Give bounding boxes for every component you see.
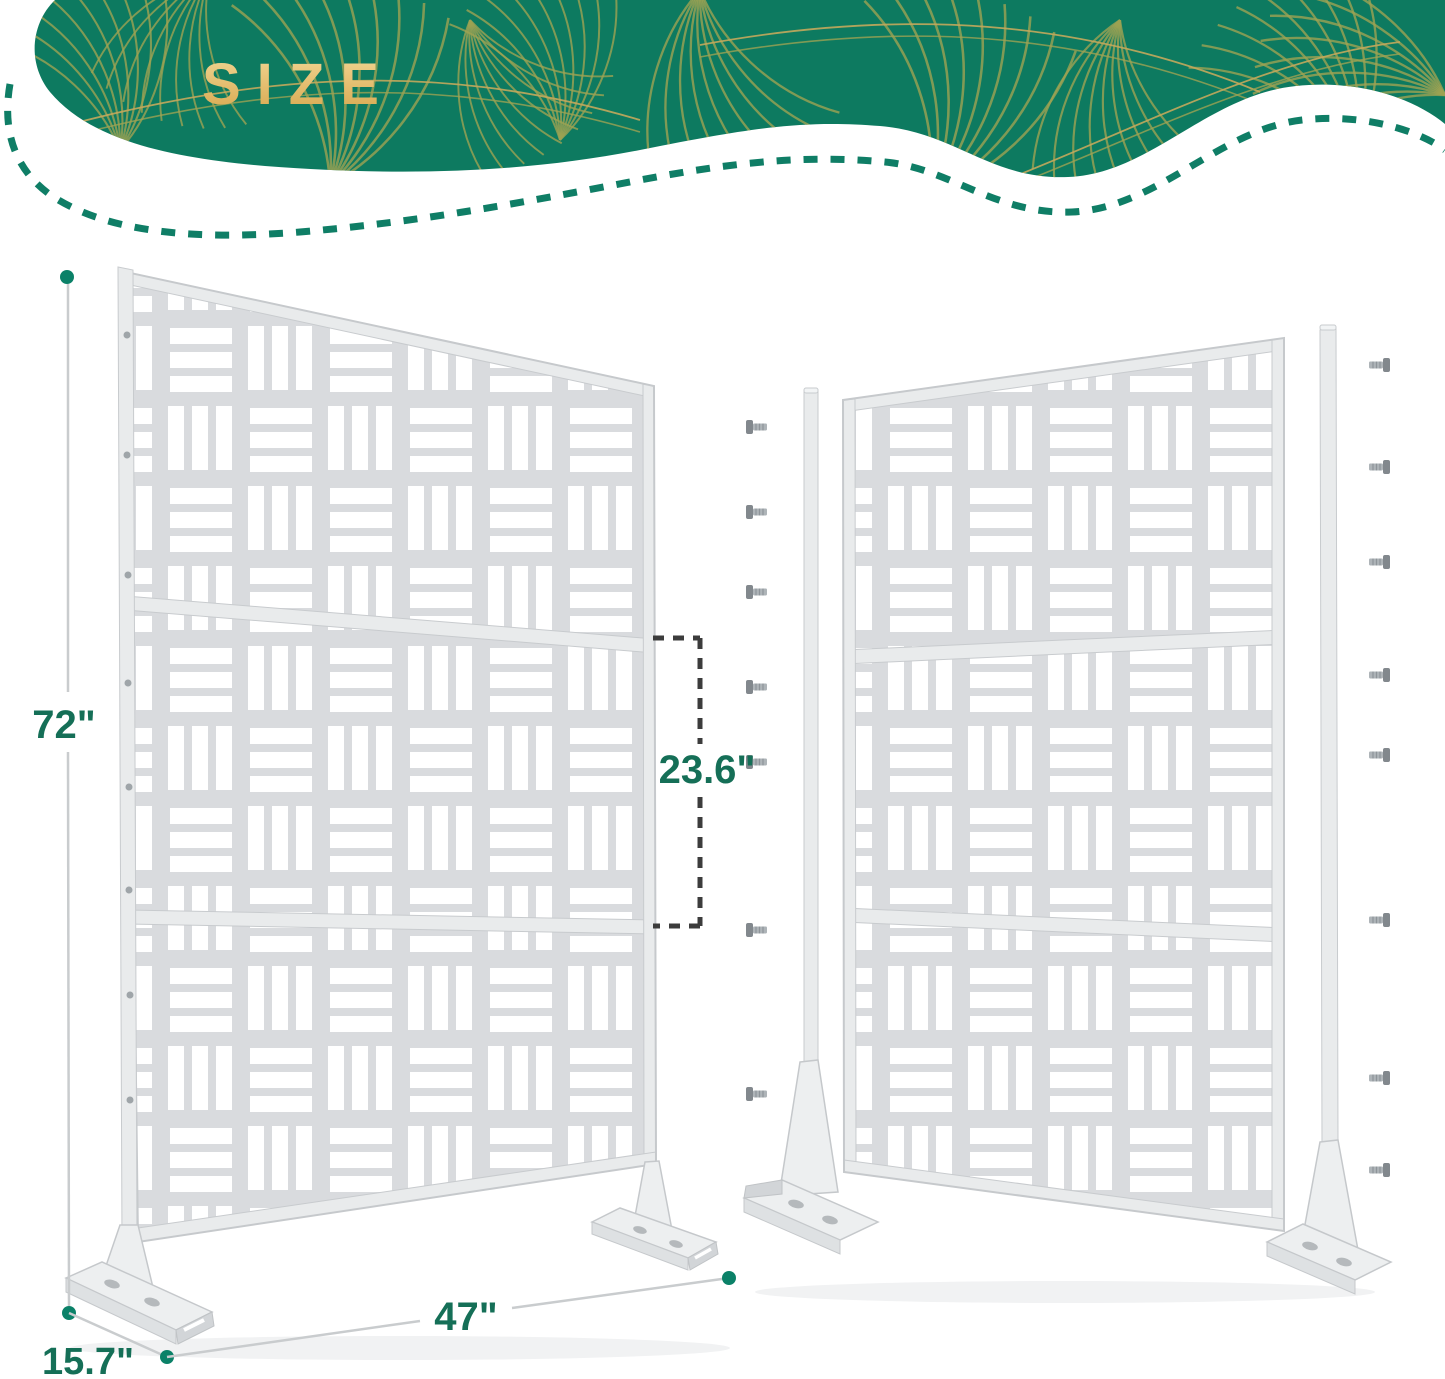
screw-head-dot [125,680,132,687]
width-dimension-label: 47" [434,1295,497,1339]
assembly-screws-right [1369,358,1390,1177]
depth-dimension-label: 15.7" [42,1341,134,1379]
screw-icon [746,1087,767,1101]
size-banner: SIZE [0,0,1445,244]
screw-head-dot [127,992,134,999]
screw-head-dot [127,1097,134,1104]
left-screen-panel [100,250,680,1260]
dimension-dot [60,270,74,284]
screw-icon [746,680,767,694]
screw-icon [1369,668,1390,682]
middle-panel-dimension-label: 23.6" [659,748,756,792]
screw-icon [746,585,767,599]
left-screen-foot-left [66,1225,214,1344]
left-post-cap [804,388,818,393]
screw-icon [1369,358,1390,372]
dimension-middle-panel: 23.6" [653,638,755,926]
right-panel-left-band [843,399,856,1175]
dimension-height: 72" [32,270,95,1320]
right-screen-shadow [755,1281,1375,1303]
banner-title: SIZE [202,52,395,117]
right-screen [744,320,1391,1294]
dimension-dot [722,1271,736,1285]
screw-icon [746,420,767,434]
screw-icon [746,505,767,519]
screw-icon [1369,555,1390,569]
screw-head-dot [126,784,133,791]
screw-head-dot [124,452,131,459]
screw-icon [1369,460,1390,474]
left-panel-lattice [100,250,680,1260]
right-panel-right-band [1272,338,1284,1233]
screw-icon [1369,913,1390,927]
screw-head-dot [124,332,131,339]
left-screen-foot-right [592,1161,718,1270]
right-panel-lattice [820,320,1300,1250]
screw-icon [1369,748,1390,762]
screw-icon [1369,1071,1390,1085]
size-diagram: SIZE [0,0,1445,1379]
right-screen-panel [820,320,1300,1250]
height-dimension-label: 72" [32,703,95,747]
screw-head-dot [126,887,133,894]
right-post-cap [1320,325,1336,330]
right-post [1320,328,1338,1148]
screw-icon [746,923,767,937]
screw-head-dot [125,572,132,579]
left-post-gusset [779,1060,838,1196]
left-post [804,390,818,1066]
screw-icon [1369,1163,1390,1177]
left-screen [66,250,718,1344]
size-diagram-page: SIZE [0,0,1445,1379]
